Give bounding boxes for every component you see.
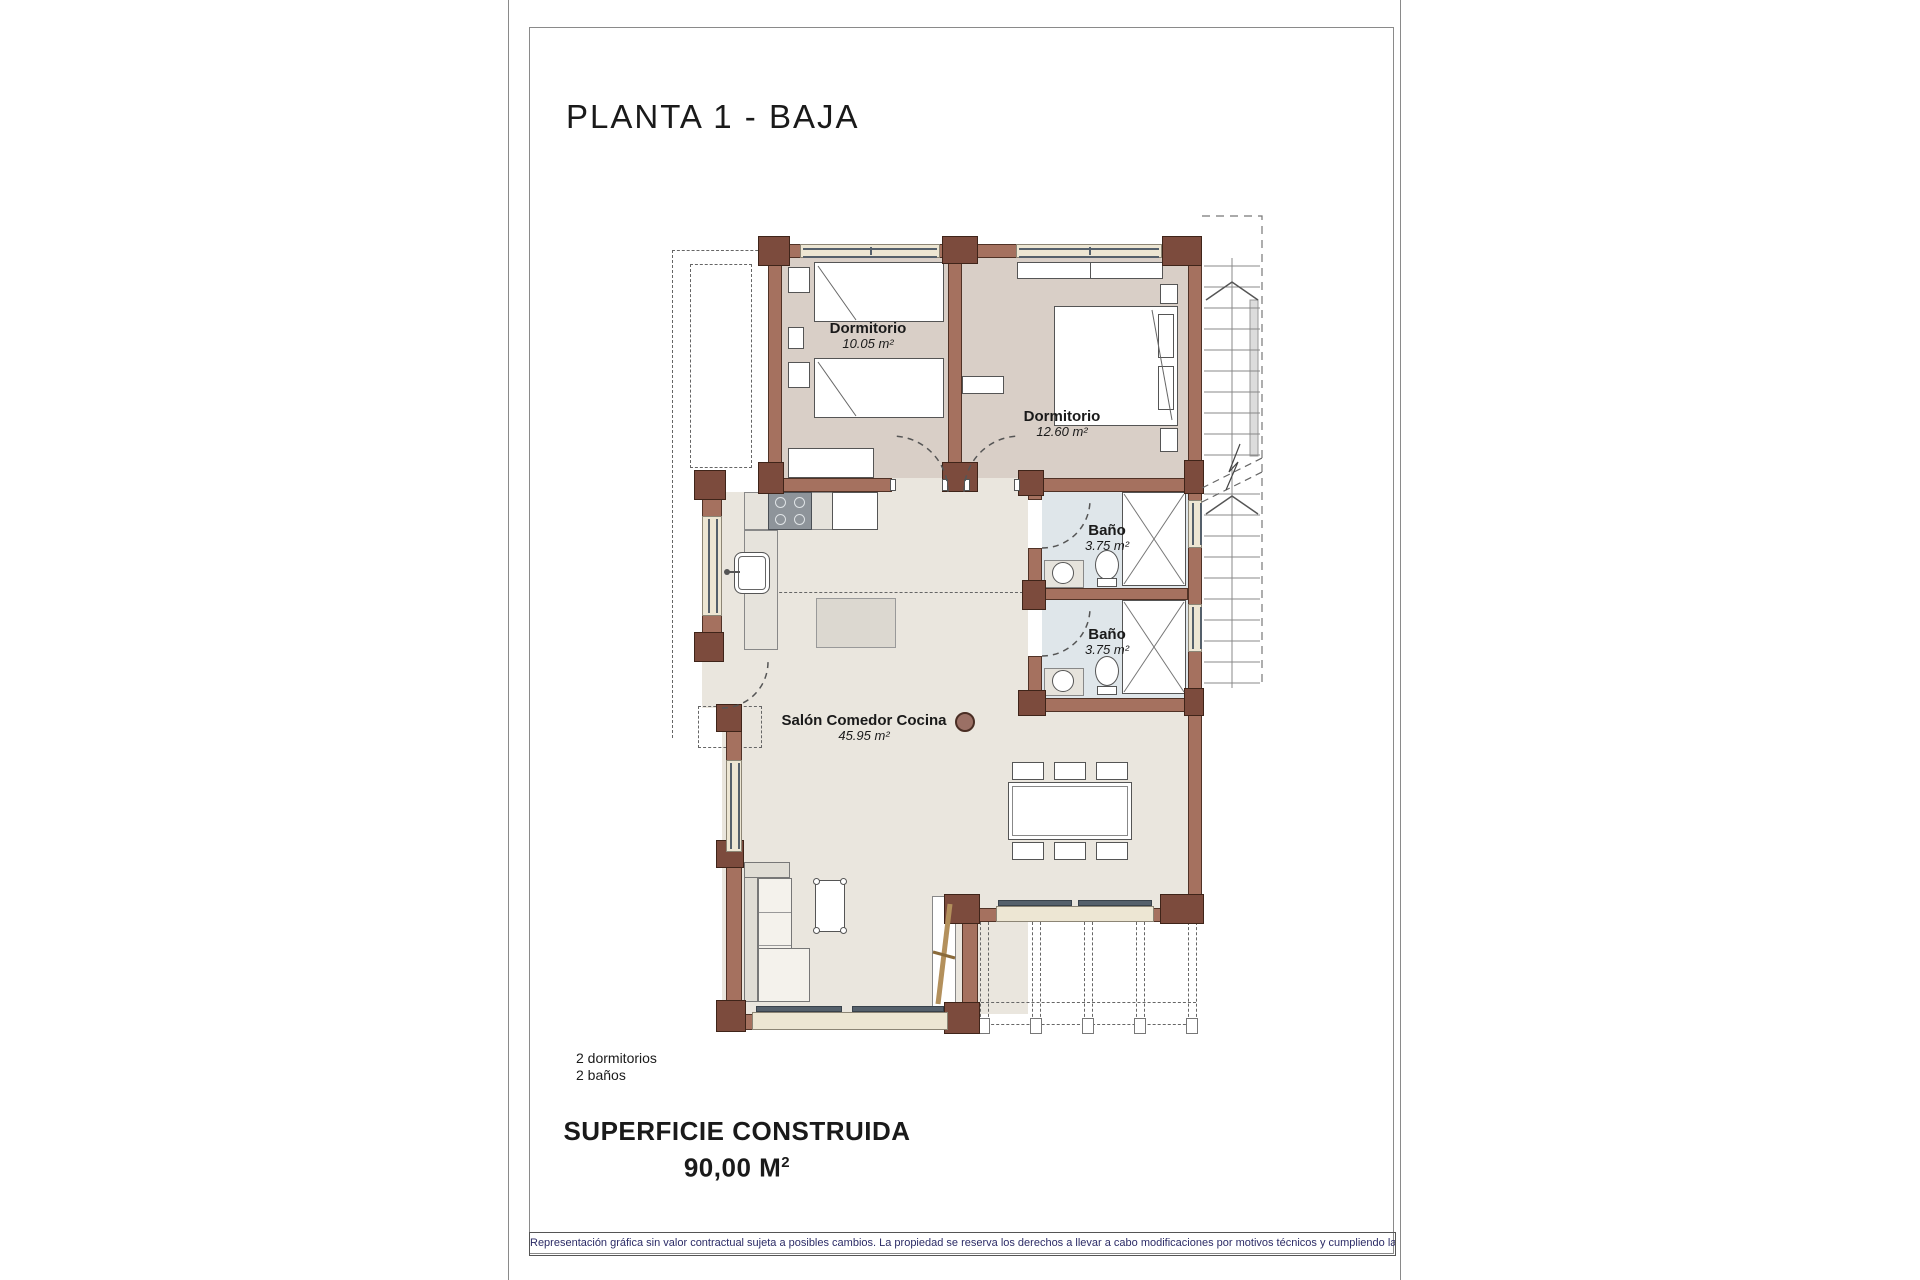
wall-column (694, 632, 724, 662)
structural-column (955, 712, 975, 732)
pergola-post-line (1092, 922, 1093, 1022)
window (702, 516, 722, 616)
room-name: Baño (1085, 626, 1129, 643)
window-glazing (1078, 900, 1152, 906)
pergola-post-line (1188, 922, 1189, 1022)
room-label-bedroom-1: Dormitorio 10.05 m² (830, 320, 907, 352)
wardrobe (1017, 262, 1163, 279)
kitchen-cabinet (832, 492, 878, 530)
wall-column (694, 470, 726, 500)
overhang-dashed-rect (690, 264, 752, 468)
pergola-post-line (1196, 922, 1197, 1022)
pergola-post (1030, 1018, 1042, 1034)
built-surface-label: SUPERFICIE CONSTRUIDA (563, 1116, 910, 1147)
pergola-post-line (1144, 922, 1145, 1022)
wall-column (1022, 580, 1046, 610)
outer-border-left (508, 0, 509, 1280)
wall-column (758, 462, 784, 494)
nightstand (1160, 428, 1178, 452)
washbasin-1 (1052, 562, 1074, 584)
dining-chair (1012, 762, 1044, 780)
sofa-chaise (758, 948, 810, 1002)
shower-2 (1122, 600, 1186, 694)
room-label-bath-1: Baño 3.75 m² (1085, 522, 1129, 554)
wall-column (942, 236, 978, 264)
wall-column (1160, 894, 1204, 924)
pergola-post (1082, 1018, 1094, 1034)
pergola-post-line (1040, 922, 1041, 1022)
terrace-dash-boundary-1 (976, 1002, 1196, 1003)
toilet-2 (1095, 656, 1119, 686)
sliding-door-glazing (852, 1006, 944, 1012)
room-label-living: Salón Comedor Cocina 45.95 m² (781, 712, 946, 744)
shelf (962, 376, 1004, 394)
page: { "title": "PLANTA 1 - BAJA", "rooms": [… (0, 0, 1920, 1280)
washbasin-2 (1052, 670, 1074, 692)
wall-partition-bedrooms (948, 258, 962, 478)
window (1188, 500, 1202, 548)
dining-chair (1012, 842, 1044, 860)
window (1016, 244, 1162, 258)
legal-disclaimer: Representación gráfica sin valor contrac… (529, 1232, 1396, 1256)
wall (1188, 698, 1202, 922)
room-name: Baño (1085, 522, 1129, 539)
wall (726, 708, 742, 1030)
door-jamb (890, 479, 896, 491)
room-name: Dormitorio (1024, 408, 1101, 425)
toilet-tank-2 (1097, 686, 1117, 695)
single-bed-2 (814, 358, 944, 418)
wall-column (716, 1000, 746, 1032)
summary-bedrooms: 2 dormitorios (576, 1050, 657, 1067)
shower-1 (1122, 492, 1186, 586)
window-sill (996, 906, 1154, 922)
wall-column (716, 704, 742, 732)
wall-column (1184, 688, 1204, 716)
toilet-tank-1 (1097, 578, 1117, 587)
dresser (788, 448, 874, 478)
stove-cooktop (768, 492, 812, 530)
pillow (1158, 314, 1174, 358)
pergola-post-line (1084, 922, 1085, 1022)
outer-border-right (1400, 0, 1401, 1280)
wall (768, 478, 892, 492)
room-area: 3.75 m² (1085, 643, 1129, 658)
built-surface: SUPERFICIE CONSTRUIDA 90,00 M2 (563, 1116, 910, 1184)
window (726, 760, 742, 852)
sofa-armrest (744, 862, 790, 878)
coffee-table (815, 880, 845, 932)
nightstand (1160, 284, 1178, 304)
room-area: 10.05 m² (830, 337, 907, 352)
wall-column (944, 1002, 980, 1034)
window (800, 244, 940, 258)
single-bed-1 (814, 262, 944, 322)
pergola-post-line (980, 922, 981, 1022)
overhang-dash-top (672, 250, 768, 251)
wall-column (1184, 460, 1204, 494)
pergola-post (1134, 1018, 1146, 1034)
wall-column (758, 236, 790, 266)
room-label-bedroom-2: Dormitorio 12.60 m² (1024, 408, 1101, 440)
pergola-post-line (1136, 922, 1137, 1022)
door-jamb (1014, 479, 1020, 491)
door-jamb (942, 479, 948, 491)
sliding-door-sill (752, 1012, 948, 1030)
dining-chair (1096, 842, 1128, 860)
wall-column (1162, 236, 1202, 266)
program-summary: 2 dormitorios 2 baños (576, 1050, 657, 1084)
wall-partition-baths (1042, 588, 1188, 600)
nightstand (788, 327, 804, 349)
pergola-post (1186, 1018, 1198, 1034)
wall-column (1018, 690, 1046, 716)
window-glazing (998, 900, 1072, 906)
pergola-post-line (1032, 922, 1033, 1022)
wall (1020, 478, 1188, 492)
built-surface-value: 90,00 M2 (563, 1147, 910, 1184)
room-area: 3.75 m² (1085, 539, 1129, 554)
pillow (1158, 366, 1174, 410)
room-name: Dormitorio (830, 320, 907, 337)
wall (1028, 698, 1202, 712)
room-name: Salón Comedor Cocina (781, 712, 946, 729)
dining-table (1008, 782, 1132, 840)
door-jamb (964, 479, 970, 491)
room-area: 12.60 m² (1024, 425, 1101, 440)
dining-chair (1054, 842, 1086, 860)
dining-chair (1054, 762, 1086, 780)
kitchen-island (816, 598, 896, 648)
window (1188, 604, 1202, 652)
room-area: 45.95 m² (781, 729, 946, 744)
wall-column (1018, 470, 1044, 496)
floor-entry-threshold (702, 662, 726, 708)
kitchen-sink (734, 552, 770, 594)
kitchen-zone-dash-horizontal (744, 592, 1028, 593)
sliding-door-glazing (756, 1006, 842, 1012)
pergola-post-line (988, 922, 989, 1022)
plan-title: PLANTA 1 - BAJA (566, 98, 859, 136)
pillow (788, 267, 810, 293)
superscript: 2 (781, 1154, 790, 1171)
pillow (788, 362, 810, 388)
sofa-back (744, 862, 758, 1002)
summary-baths: 2 baños (576, 1067, 657, 1084)
room-label-bath-2: Baño 3.75 m² (1085, 626, 1129, 658)
overhang-dash-left (672, 250, 673, 738)
door-opening-bedroom-1 (892, 478, 948, 492)
wall (768, 244, 782, 492)
dining-chair (1096, 762, 1128, 780)
wall-column (944, 894, 980, 924)
toilet-1 (1095, 550, 1119, 580)
